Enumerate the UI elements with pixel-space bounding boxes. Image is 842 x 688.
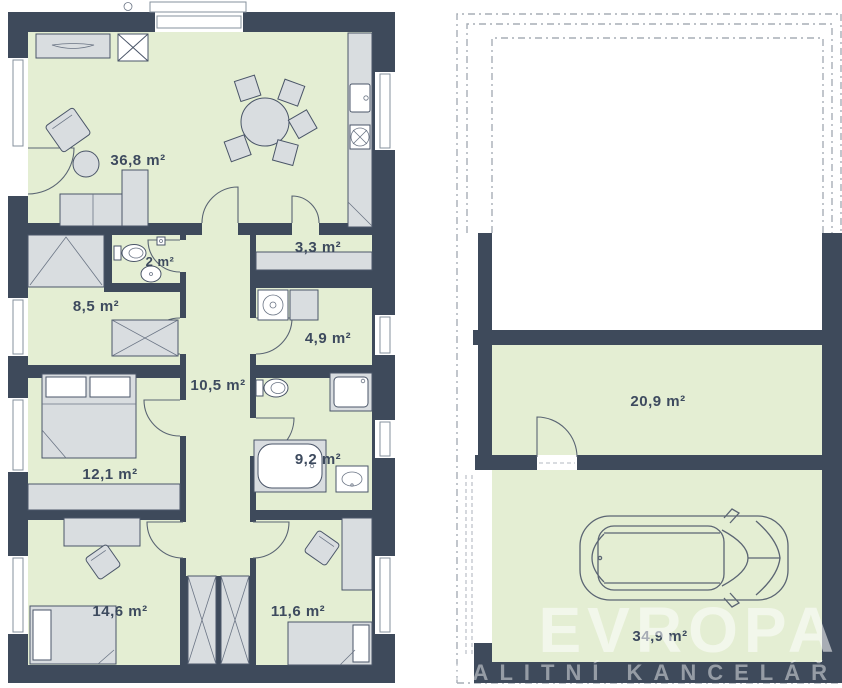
room-label-living: 36,8 m² (110, 152, 165, 169)
room-label-bedroom3: 11,6 m² (271, 603, 325, 620)
room-label-bathroom: 9,2 m² (295, 451, 341, 468)
room-label-entry: 3,3 m² (295, 239, 341, 256)
pillow (353, 625, 369, 662)
toilet-icon (122, 245, 146, 262)
outbuilding: 20,9 m² 34,9 m² (457, 14, 842, 683)
terrace-door-opening (8, 148, 28, 196)
sofa-chaise (122, 170, 148, 226)
pillow (33, 610, 51, 660)
watermark-brand: EVROPA (538, 594, 840, 666)
desk (342, 518, 372, 590)
coffee-table (73, 151, 99, 177)
room-label-storage: 20,9 m² (630, 393, 685, 410)
room-label-bedroom1: 12,1 m² (82, 466, 137, 483)
bedroom1-window (8, 398, 28, 472)
watermark-tagline: REALITNÍ KANCELÁŘ (420, 660, 838, 685)
tv-sideboard (36, 34, 110, 58)
hallway-floor (186, 235, 250, 576)
toilet-tank (114, 246, 121, 260)
entrance-porch (150, 2, 246, 12)
watermark: EVROPA REALITNÍ KANCELÁŘ (420, 594, 840, 685)
floor-plan-page: 36,8 m² 2 m² 3,3 m² 8,5 m² 4,9 m² 10,5 m… (0, 0, 842, 688)
room-label-wc: 2 m² (146, 254, 175, 269)
entrance-door (155, 12, 243, 32)
vent-icon (157, 237, 165, 245)
washing-machine (258, 290, 288, 320)
kitchen-sink (350, 84, 370, 112)
kitchen-window (375, 72, 395, 150)
bedroom2-window (8, 556, 28, 634)
room-label-tech: 4,9 m² (305, 330, 351, 347)
bedroom1-wardrobe (28, 484, 180, 510)
pillow (90, 377, 130, 397)
room-label-hall: 10,5 m² (190, 377, 245, 394)
pillow (46, 377, 86, 397)
desk (64, 518, 140, 546)
bathroom-window (375, 420, 395, 458)
toilet-icon (264, 379, 288, 397)
wardrobe-gable (28, 235, 104, 287)
room-label-closet: 8,5 m² (73, 298, 119, 315)
chimney-vent-icon (124, 3, 132, 11)
room-label-bedroom2: 14,6 m² (92, 603, 147, 620)
bedroom3-window (375, 556, 395, 634)
toilet-tank (256, 380, 263, 396)
tech-appliances (258, 290, 318, 320)
house: 36,8 m² 2 m² 3,3 m² 8,5 m² 4,9 m² 10,5 m… (8, 2, 395, 683)
bathroom-sink (336, 466, 368, 492)
dryer (290, 290, 318, 320)
living-window (8, 58, 28, 148)
floor-plan: 36,8 m² 2 m² 3,3 m² 8,5 m² 4,9 m² 10,5 m… (0, 0, 842, 688)
tech-window (375, 315, 395, 355)
dining-table (241, 98, 289, 146)
closet-window (8, 298, 28, 356)
